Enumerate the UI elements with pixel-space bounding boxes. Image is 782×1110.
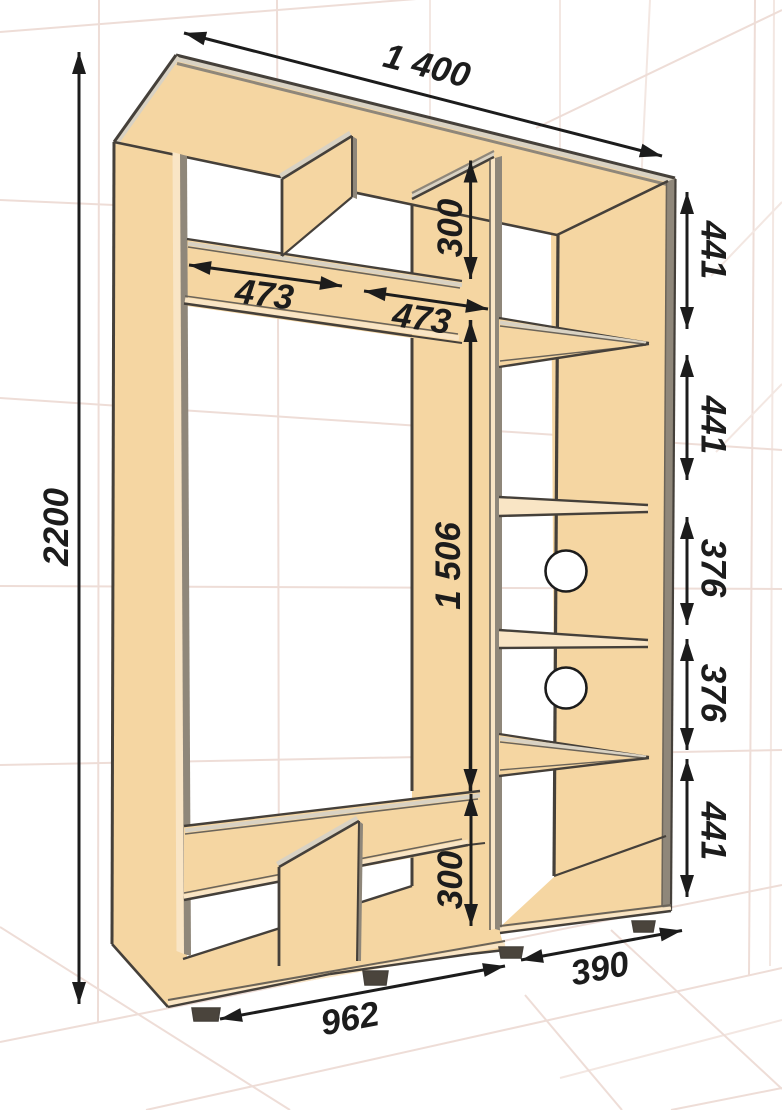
svg-text:473: 473 xyxy=(232,272,296,318)
svg-text:441: 441 xyxy=(694,220,733,279)
svg-text:473: 473 xyxy=(389,295,454,342)
svg-text:376: 376 xyxy=(694,664,733,723)
svg-text:441: 441 xyxy=(694,801,733,860)
svg-text:376: 376 xyxy=(694,539,733,598)
svg-text:2200: 2200 xyxy=(37,488,76,567)
svg-text:441: 441 xyxy=(694,395,733,454)
svg-text:300: 300 xyxy=(431,198,470,257)
svg-text:1 506: 1 506 xyxy=(429,522,468,610)
svg-text:300: 300 xyxy=(431,850,470,909)
